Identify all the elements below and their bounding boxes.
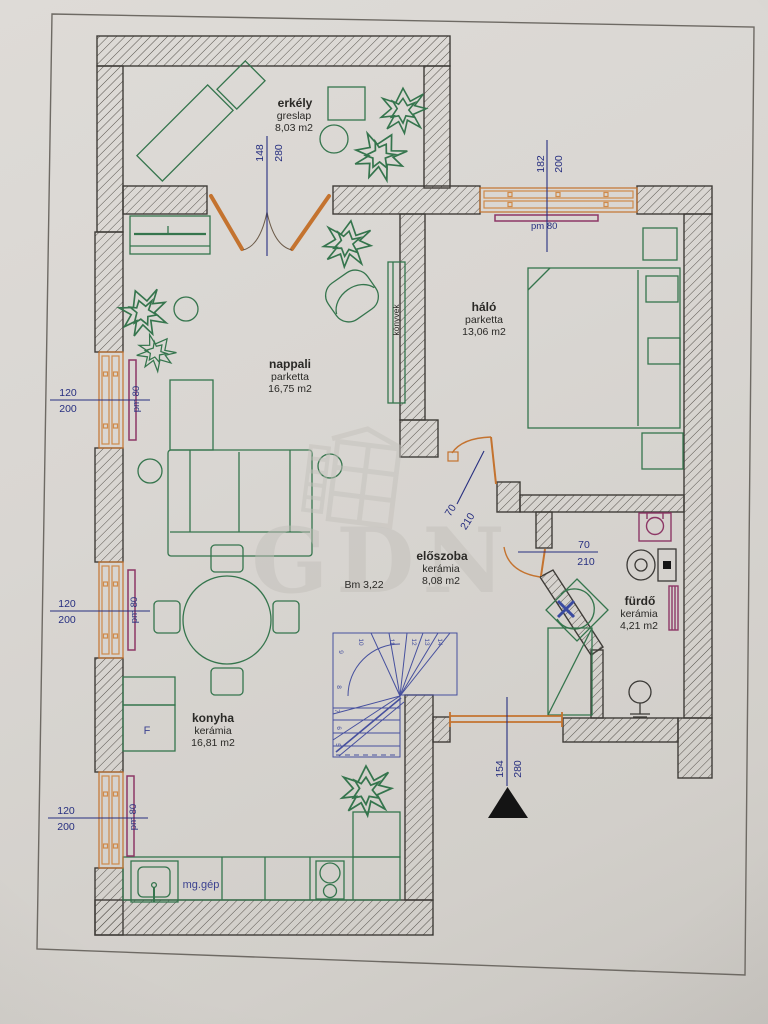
svg-text:pm 80: pm 80 [129, 597, 140, 623]
room-label-bedroom: háló parketta 13,06 m2 [462, 300, 506, 338]
balcony-lounger [137, 61, 265, 181]
svg-text:6: 6 [335, 726, 342, 730]
dim-balcony-door: 148 280 [254, 136, 285, 256]
room-label-balcony: erkély greslap 8,03 m2 [275, 96, 313, 134]
appliance-label: mg.gép [183, 879, 220, 891]
shower-head-icon [629, 681, 651, 717]
svg-text:13,06 m2: 13,06 m2 [462, 326, 506, 338]
svg-text:16,81 m2: 16,81 m2 [191, 737, 235, 749]
svg-text:erkély: erkély [278, 96, 313, 110]
svg-text:120: 120 [58, 598, 76, 610]
svg-text:280: 280 [512, 760, 524, 778]
svg-text:120: 120 [57, 805, 75, 817]
svg-text:háló: háló [472, 300, 497, 314]
svg-text:14: 14 [436, 638, 443, 646]
svg-text:nappali: nappali [269, 357, 311, 371]
svg-text:154: 154 [494, 760, 506, 778]
tv-cabinet [130, 216, 210, 254]
svg-text:kerámia: kerámia [620, 608, 658, 620]
nightstand [643, 228, 677, 260]
room-label-bathroom: fürdő kerámia 4,21 m2 [620, 594, 658, 632]
svg-text:200: 200 [57, 821, 75, 833]
hob [316, 861, 344, 899]
balcony-door [211, 196, 329, 250]
svg-text:9: 9 [337, 650, 344, 654]
bedroom-door [448, 437, 496, 484]
svg-text:konyha: konyha [192, 711, 234, 725]
balcony-table [328, 87, 365, 120]
floor-plan-drawing: 5 6 7 8 9 10 11 12 13 14 [0, 0, 768, 1024]
walls [95, 36, 712, 935]
floor-plan-photo: 5 6 7 8 9 10 11 12 13 14 [0, 0, 768, 1024]
svg-text:11: 11 [388, 639, 395, 646]
svg-text:182: 182 [535, 155, 547, 173]
svg-text:pm 80: pm 80 [131, 386, 142, 412]
entrance-door [450, 712, 562, 727]
side-table [138, 459, 162, 483]
washbasin-icon [639, 513, 671, 541]
svg-text:8,08 m2: 8,08 m2 [422, 575, 460, 587]
shower-tray [548, 628, 592, 715]
svg-text:parketta: parketta [465, 314, 503, 326]
svg-text:16,75 m2: 16,75 m2 [268, 383, 312, 395]
radiator-icon [669, 586, 678, 630]
ceiling-height-label: Bm 3,22 [344, 579, 383, 591]
svg-text:8: 8 [335, 685, 342, 689]
entrance-marker-triangle [488, 787, 528, 818]
armchair [320, 264, 385, 328]
svg-text:120: 120 [59, 387, 77, 399]
window-bedroom [480, 188, 637, 221]
svg-text:210: 210 [577, 556, 595, 568]
cabinet [170, 380, 213, 450]
dim-left-window-3: 120 200 pm 80 [48, 804, 148, 833]
room-label-living: nappali parketta 16,75 m2 [268, 357, 312, 395]
svg-text:fürdő: fürdő [625, 594, 656, 608]
dim-left-window-1: 120 200 pm 80 [50, 386, 150, 415]
dim-bathroom-door: 70 210 [518, 539, 598, 568]
svg-text:200: 200 [553, 155, 565, 173]
svg-text:4,21 m2: 4,21 m2 [620, 620, 658, 632]
svg-text:13: 13 [423, 638, 430, 646]
fridge-label: F [144, 725, 151, 737]
svg-text:280: 280 [273, 144, 285, 162]
toilet-icon [627, 549, 676, 581]
svg-text:200: 200 [59, 403, 77, 415]
room-label-kitchen: konyha kerámia 16,81 m2 [191, 711, 235, 749]
bed [528, 268, 680, 428]
svg-text:kerámia: kerámia [422, 563, 460, 575]
dim-left-window-2: 120 200 pm 80 [50, 597, 150, 626]
svg-text:12: 12 [410, 638, 417, 646]
svg-text:előszoba: előszoba [416, 549, 468, 563]
svg-text:kerámia: kerámia [194, 725, 232, 737]
svg-text:148: 148 [254, 144, 266, 162]
side-table [174, 297, 198, 321]
svg-text:10: 10 [357, 638, 364, 646]
fridge [123, 677, 175, 751]
svg-text:parketta: parketta [271, 371, 309, 383]
svg-text:8,03 m2: 8,03 m2 [275, 122, 313, 134]
svg-text:greslap: greslap [277, 110, 312, 122]
svg-text:pm 80: pm 80 [128, 804, 139, 830]
svg-text:70: 70 [578, 539, 590, 551]
svg-text:7: 7 [333, 709, 340, 713]
svg-text:5: 5 [334, 743, 341, 747]
kitchen-counter [123, 812, 400, 900]
nightstand [642, 433, 683, 469]
balcony-chair [320, 125, 348, 153]
svg-text:pm 80: pm 80 [531, 221, 557, 232]
bookshelf-label: könyvek [391, 304, 401, 336]
svg-text:200: 200 [58, 614, 76, 626]
kitchen-sink [131, 861, 178, 902]
